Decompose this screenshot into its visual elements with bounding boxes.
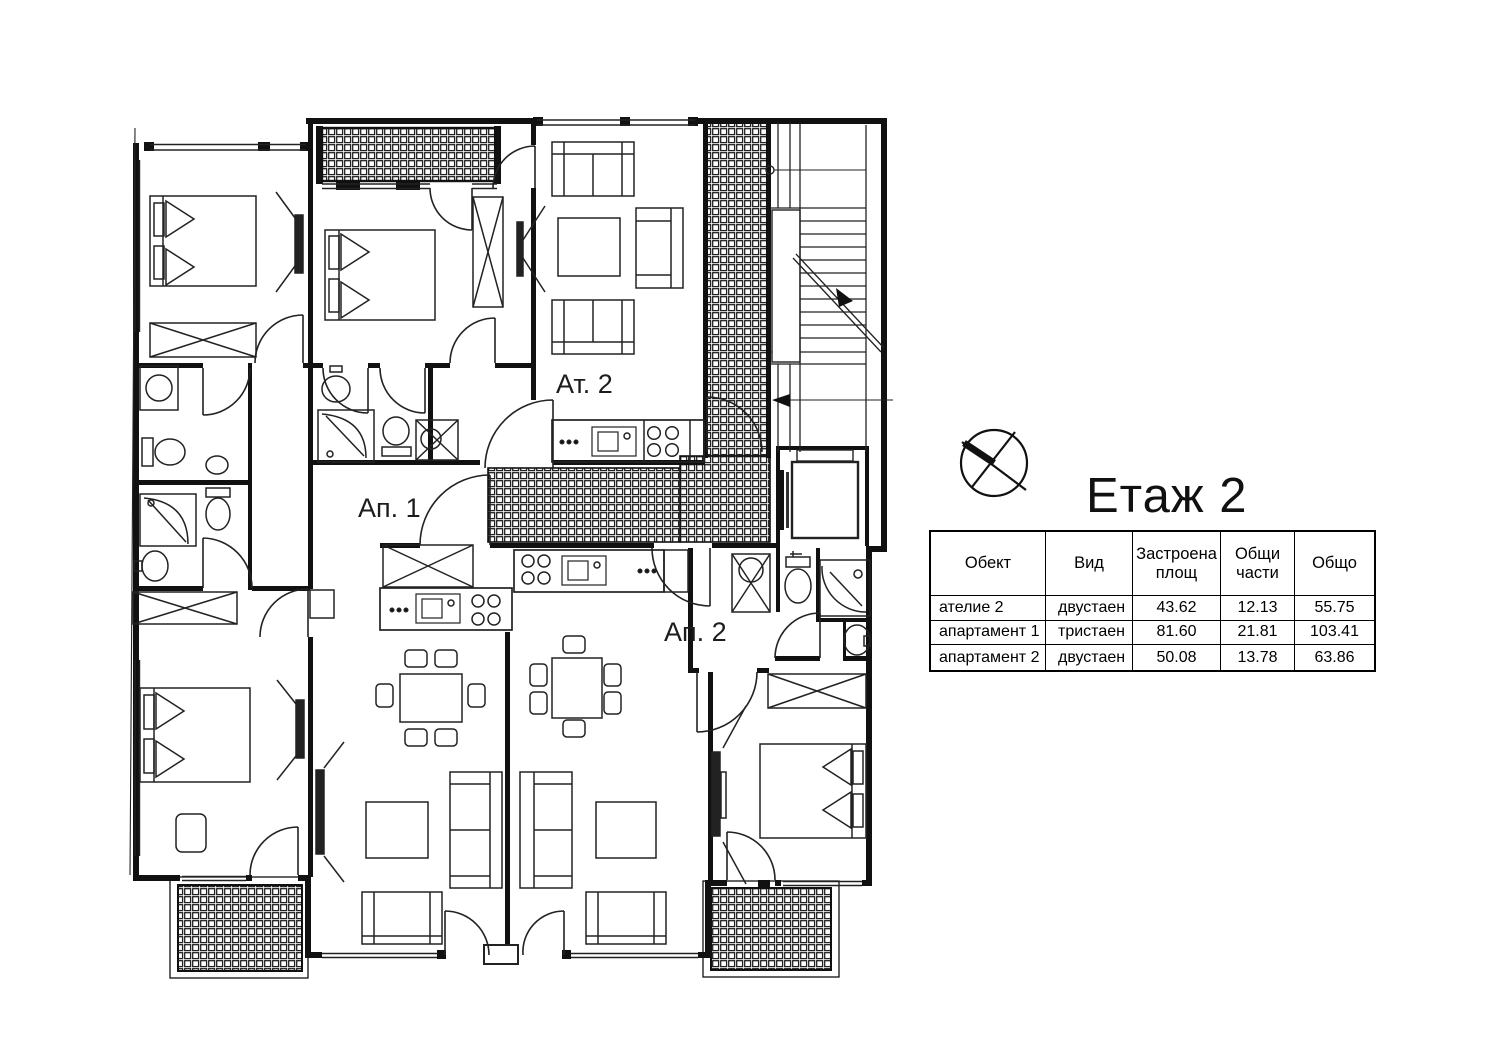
bedroom-top-left bbox=[150, 192, 303, 357]
door-arc bbox=[323, 368, 368, 413]
stairs-arrow-icon bbox=[772, 394, 790, 407]
door-arc bbox=[250, 827, 298, 875]
door-arc bbox=[450, 318, 495, 363]
balcony-bottom-right bbox=[711, 888, 831, 970]
bedroom-top-middle bbox=[325, 197, 545, 320]
tv bbox=[316, 770, 324, 854]
table-cell-total: 55.75 bbox=[1295, 596, 1374, 621]
hatched-areas bbox=[170, 122, 839, 978]
door-arc bbox=[380, 368, 425, 413]
terrace-bottom bbox=[680, 456, 770, 542]
table-cell-built-area: 43.62 bbox=[1133, 596, 1221, 621]
chair bbox=[376, 684, 393, 707]
table-cell-object: ателие 2 bbox=[931, 596, 1046, 621]
tv bbox=[295, 215, 303, 273]
label-apartment-2: Ап. 2 bbox=[664, 617, 727, 647]
toilet bbox=[206, 498, 230, 530]
stove-burner bbox=[522, 572, 534, 584]
pillow bbox=[166, 201, 194, 285]
toilet bbox=[383, 417, 409, 445]
table-cell-built-area: 50.08 bbox=[1133, 645, 1221, 670]
balcony-bottom-left bbox=[178, 885, 302, 971]
pillow bbox=[823, 749, 851, 828]
stove-burner bbox=[472, 613, 484, 625]
area-summary-table: Обект Вид Застроена площ Общи части Общо… bbox=[929, 530, 1376, 672]
stairs-arrow-icon bbox=[836, 288, 853, 307]
table-cell-total: 103.41 bbox=[1295, 621, 1374, 646]
door-arc bbox=[727, 832, 775, 880]
tv bbox=[296, 700, 304, 758]
bedroom-bottom-left bbox=[140, 680, 304, 852]
chair bbox=[405, 650, 427, 667]
toilet bbox=[785, 569, 811, 603]
cabinet bbox=[664, 550, 688, 592]
tv bbox=[712, 752, 720, 836]
pillow bbox=[341, 234, 369, 318]
door-arc bbox=[420, 475, 490, 545]
door-arc bbox=[203, 368, 250, 415]
left-bathrooms bbox=[133, 366, 237, 624]
chair bbox=[604, 692, 621, 714]
chair bbox=[530, 692, 547, 714]
col-header-type: Вид bbox=[1046, 532, 1133, 596]
stove-burner bbox=[472, 595, 484, 607]
dining-table bbox=[400, 674, 462, 722]
door-arc bbox=[260, 589, 308, 637]
col-header-object: Обект bbox=[931, 532, 1046, 596]
page: { "floor_plan": { "unit_labels": { "atel… bbox=[0, 0, 1500, 1060]
atelier-2-living bbox=[552, 142, 704, 462]
table-cell-built-area: 81.60 bbox=[1133, 621, 1221, 646]
floor-title: Етаж 2 bbox=[1086, 468, 1247, 524]
door-arc bbox=[445, 911, 489, 955]
label-apartment-1: Ап. 1 bbox=[358, 493, 421, 523]
table-cell-type: двустаен bbox=[1046, 596, 1133, 621]
table-cell-type: тристаен bbox=[1046, 621, 1133, 646]
stove-burner bbox=[522, 555, 534, 567]
sink bbox=[322, 376, 350, 402]
stove-burner bbox=[648, 427, 661, 440]
chair bbox=[604, 664, 621, 686]
table-cell-common-parts: 13.78 bbox=[1221, 645, 1295, 670]
elevator-cab bbox=[792, 462, 858, 538]
chair bbox=[530, 664, 547, 686]
door-arc bbox=[203, 538, 252, 588]
tv bbox=[517, 222, 523, 276]
stove-burner bbox=[648, 444, 661, 457]
coffee-table bbox=[366, 802, 428, 858]
kitchen-sink bbox=[416, 594, 460, 623]
stove-burner bbox=[538, 555, 550, 567]
pillow bbox=[156, 693, 184, 777]
sink bbox=[142, 551, 168, 581]
staircase bbox=[766, 122, 893, 452]
col-header-built-area: Застроена площ bbox=[1133, 532, 1221, 596]
atelier-2-bathroom bbox=[318, 366, 458, 462]
stove-burner bbox=[488, 613, 500, 625]
label-atelier-2: Ат. 2 bbox=[556, 369, 613, 399]
coffee-table bbox=[596, 802, 656, 858]
col-header-common-parts: Общи части bbox=[1221, 532, 1295, 596]
chair bbox=[176, 814, 206, 852]
col-header-total: Общо bbox=[1295, 532, 1374, 596]
door-arc bbox=[523, 911, 564, 955]
stove-burner bbox=[538, 572, 550, 584]
chair bbox=[468, 684, 485, 707]
chair bbox=[405, 729, 427, 746]
duct-box bbox=[310, 590, 334, 618]
apartment-1-rooms bbox=[316, 545, 512, 944]
door-arc bbox=[775, 613, 820, 658]
table-cell-type: двустаен bbox=[1046, 645, 1133, 670]
door-arc bbox=[697, 672, 757, 732]
table-cell-common-parts: 21.81 bbox=[1221, 621, 1295, 646]
door-arc bbox=[430, 188, 472, 230]
door-arc bbox=[255, 315, 303, 363]
chair bbox=[563, 636, 585, 653]
armchair bbox=[636, 208, 683, 288]
stove-burner bbox=[666, 427, 679, 440]
table-cell-total: 63.86 bbox=[1295, 645, 1374, 670]
door-arc bbox=[485, 400, 553, 468]
stove-burner bbox=[488, 595, 500, 607]
stove-burner bbox=[666, 444, 679, 457]
entry-corridor bbox=[488, 468, 680, 542]
toilet bbox=[155, 439, 185, 465]
small-sink bbox=[206, 456, 228, 474]
door-arc bbox=[652, 548, 710, 606]
chair bbox=[435, 650, 457, 667]
chair bbox=[563, 720, 585, 737]
dining-table bbox=[552, 658, 602, 718]
table-cell-common-parts: 12.13 bbox=[1221, 596, 1295, 621]
elevator bbox=[779, 450, 858, 538]
balcony-top bbox=[322, 128, 497, 181]
chair bbox=[435, 729, 457, 746]
table-cell-object: апартамент 2 bbox=[931, 645, 1046, 670]
table-cell-object: апартамент 1 bbox=[931, 621, 1046, 646]
coffee-table bbox=[558, 218, 620, 276]
north-arrow-icon bbox=[952, 420, 1038, 506]
